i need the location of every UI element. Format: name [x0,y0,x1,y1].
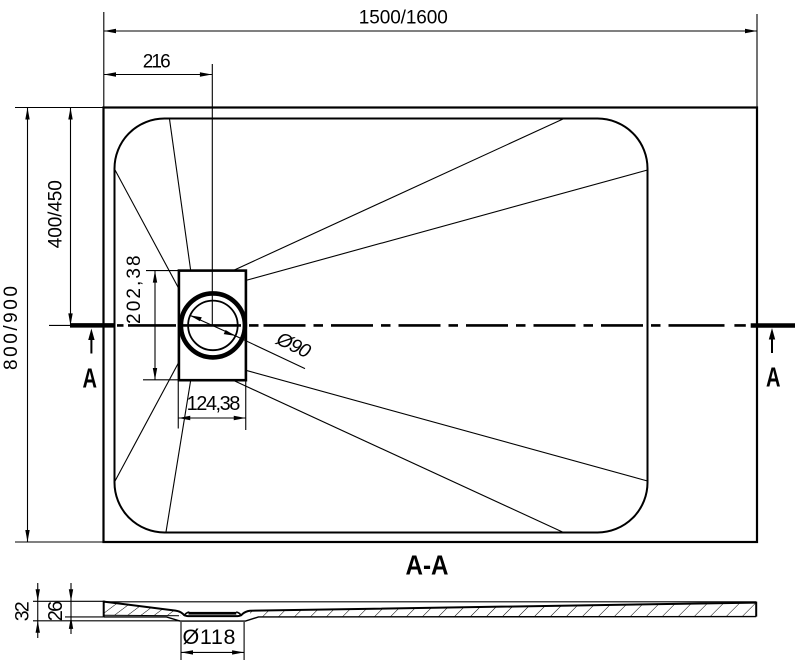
svg-text:A-A: A-A [406,550,449,581]
svg-text:26: 26 [45,601,67,622]
svg-text:216: 216 [143,52,171,73]
svg-text:202,38: 202,38 [124,255,145,324]
svg-text:32: 32 [11,601,33,621]
svg-text:Ø118: Ø118 [183,625,236,649]
svg-text:A: A [83,362,98,393]
svg-text:124,38: 124,38 [187,393,241,415]
svg-text:A: A [766,362,781,393]
svg-text:1500/1600: 1500/1600 [359,8,448,29]
svg-text:400/450: 400/450 [46,180,67,248]
